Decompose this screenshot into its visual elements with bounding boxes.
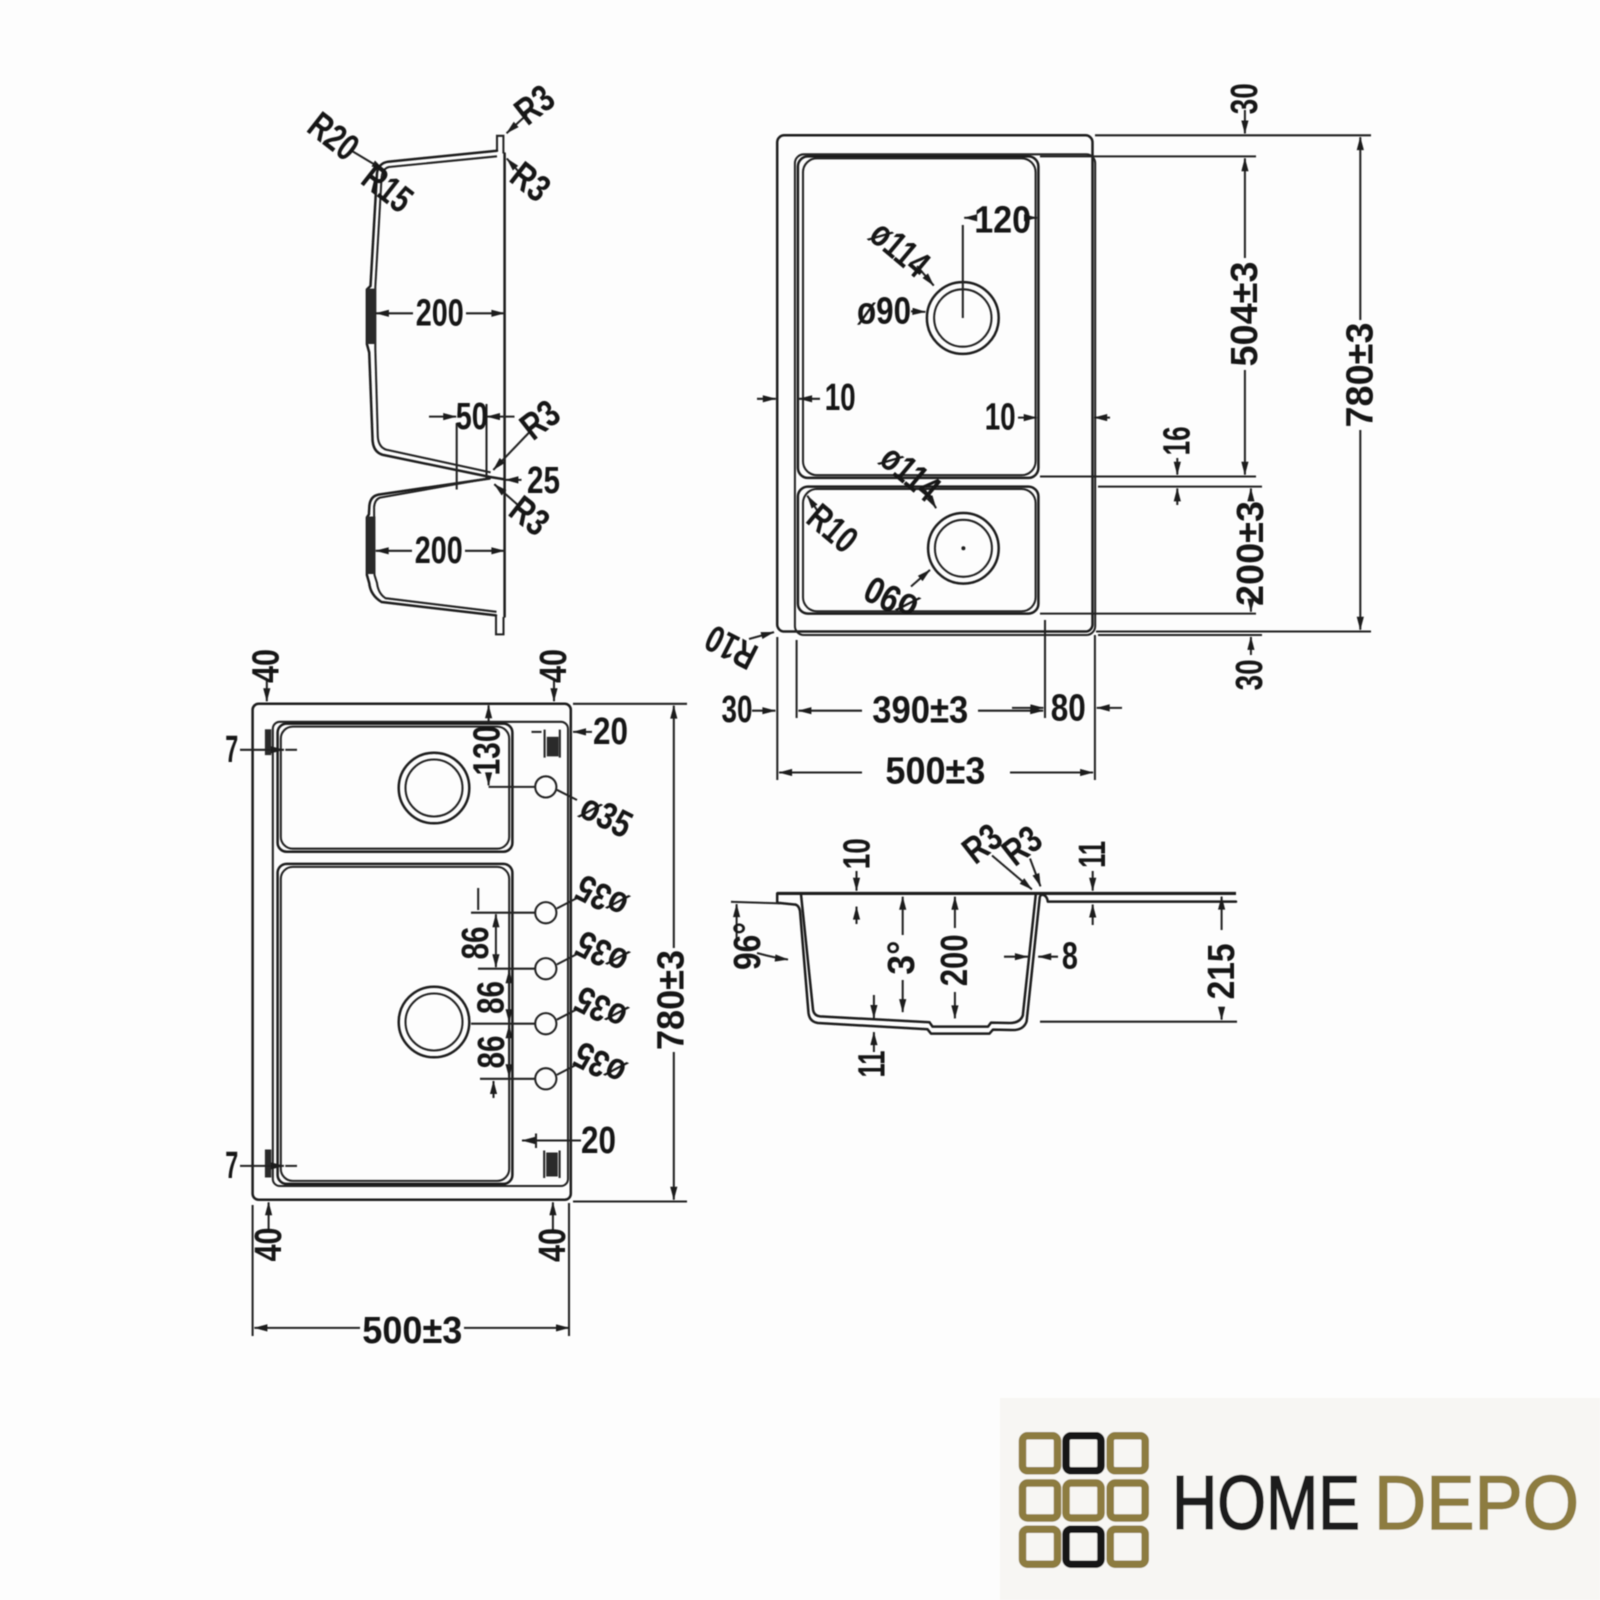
svg-text:10: 10 [825, 377, 856, 419]
svg-text:500±3: 500±3 [885, 750, 985, 792]
svg-text:ø35: ø35 [569, 865, 634, 926]
svg-text:11: 11 [1072, 841, 1114, 868]
svg-text:10: 10 [985, 397, 1016, 439]
svg-text:ø35: ø35 [573, 786, 638, 847]
svg-text:DEPO: DEPO [1374, 1461, 1579, 1546]
svg-text:86: 86 [455, 927, 497, 960]
svg-text:R10: R10 [799, 496, 866, 562]
svg-text:130: 130 [467, 726, 509, 776]
svg-text:50: 50 [456, 396, 488, 438]
svg-text:ø35: ø35 [569, 921, 634, 982]
svg-text:200±3: 200±3 [1230, 501, 1272, 606]
svg-text:7: 7 [225, 1145, 238, 1187]
svg-text:16: 16 [1156, 426, 1198, 455]
svg-text:R20: R20 [300, 104, 367, 169]
svg-text:86: 86 [471, 1036, 513, 1069]
svg-text:200: 200 [415, 530, 463, 572]
svg-text:ø35: ø35 [567, 1032, 632, 1093]
svg-text:ø90: ø90 [857, 290, 911, 332]
svg-text:8: 8 [1062, 936, 1078, 978]
svg-text:30: 30 [1229, 659, 1271, 690]
svg-text:11: 11 [852, 1051, 894, 1078]
svg-text:ø35: ø35 [568, 977, 633, 1038]
svg-text:200: 200 [934, 934, 976, 986]
svg-text:80: 80 [1051, 688, 1086, 730]
svg-text:120: 120 [974, 199, 1031, 241]
svg-text:10: 10 [836, 838, 878, 869]
svg-text:3°: 3° [881, 941, 923, 975]
svg-text:30: 30 [1224, 83, 1266, 114]
svg-text:40: 40 [532, 1228, 574, 1262]
svg-text:500±3: 500±3 [362, 1310, 462, 1352]
svg-text:R10: R10 [699, 616, 764, 677]
svg-text:ø90: ø90 [858, 567, 925, 629]
svg-text:R15: R15 [354, 156, 421, 221]
svg-text:7: 7 [225, 729, 238, 771]
svg-text:96°: 96° [727, 922, 769, 970]
svg-text:HOME: HOME [1172, 1461, 1360, 1546]
svg-text:20: 20 [581, 1120, 616, 1162]
svg-text:30: 30 [722, 689, 753, 731]
svg-text:40: 40 [533, 649, 575, 683]
svg-text:215: 215 [1201, 943, 1243, 999]
svg-text:780±3: 780±3 [651, 950, 693, 1050]
svg-text:20: 20 [593, 711, 628, 753]
svg-text:40: 40 [246, 649, 288, 683]
svg-text:40: 40 [248, 1228, 290, 1262]
svg-text:390±3: 390±3 [872, 690, 968, 732]
svg-text:780±3: 780±3 [1339, 323, 1381, 428]
svg-text:504±3: 504±3 [1224, 262, 1266, 367]
svg-text:ø114: ø114 [872, 437, 948, 510]
svg-text:86: 86 [471, 981, 513, 1014]
svg-text:200: 200 [416, 292, 464, 334]
